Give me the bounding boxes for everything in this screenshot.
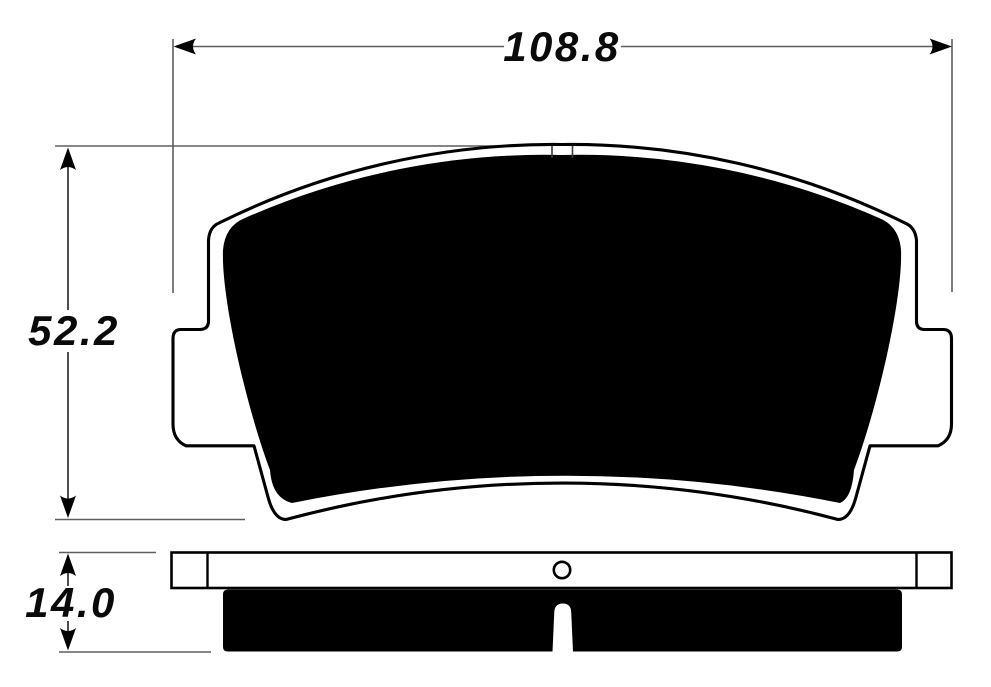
svg-text:108.8: 108.8 (503, 23, 621, 70)
svg-text:52.2: 52.2 (28, 307, 120, 354)
svg-text:14.0: 14.0 (25, 579, 117, 626)
